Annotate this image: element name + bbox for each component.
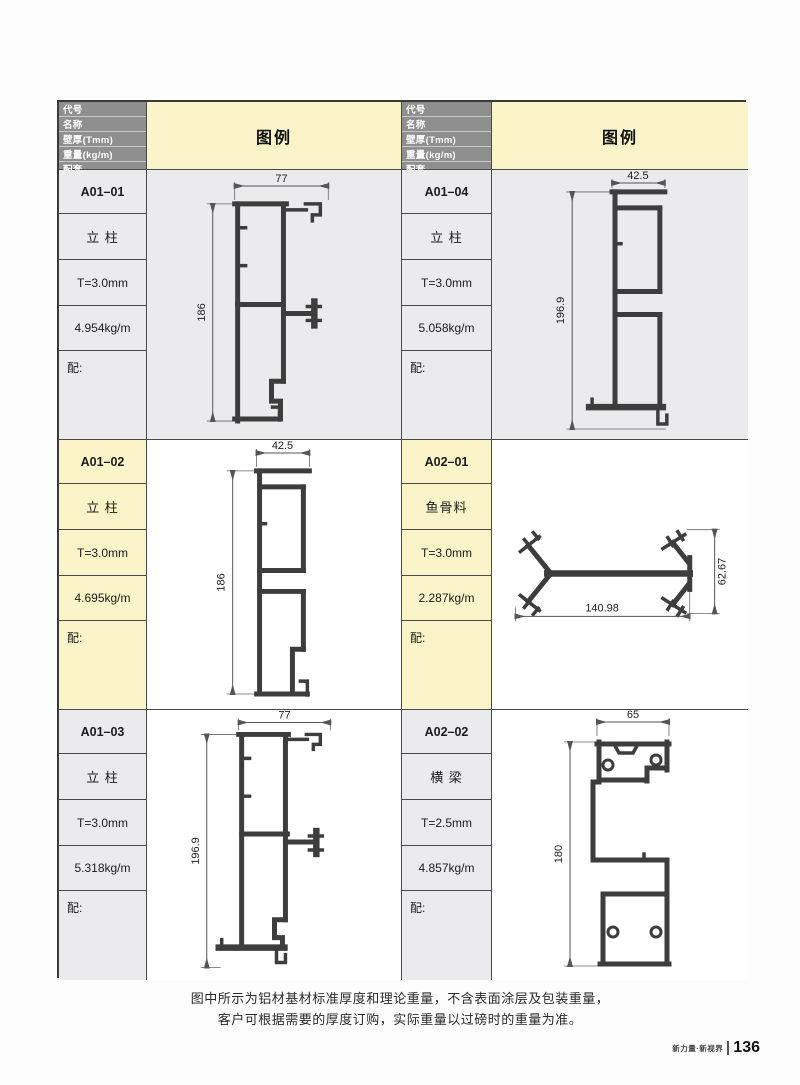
cross-section-drawing-a01-04: 42.5 196.9 — [492, 170, 748, 439]
profile-diagram-a01-04: 42.5 196.9 — [492, 170, 748, 440]
profile-info-a01-04: A01–04 立 柱 T=3.0mm 5.058kg/m 配: — [402, 170, 492, 440]
profile-diagram-a02-01: 140.98 62.67 — [492, 440, 748, 710]
dim-width-label: 77 — [278, 710, 290, 721]
profile-code: A01–02 — [59, 440, 146, 484]
profile-match: 配: — [402, 621, 491, 709]
profile-weight: 2.287kg/m — [402, 576, 491, 621]
profile-match: 配: — [402, 891, 491, 980]
dim-height-label: 186 — [216, 573, 228, 591]
profile-code: A02–01 — [402, 440, 491, 484]
cross-section-drawing-a01-03: 77 196.9 — [147, 710, 401, 980]
profile-name: 立 柱 — [402, 214, 491, 260]
profile-match: 配: — [402, 351, 491, 439]
cross-section-drawing-a01-01: 77 186 — [147, 170, 401, 439]
dim-height-label: 186 — [196, 303, 208, 321]
header-field-name: 名称 — [59, 117, 146, 132]
profile-thickness: T=2.5mm — [402, 800, 491, 846]
header-legend-left: 图例 — [147, 102, 402, 170]
brand-slogan: 新力量·新视界 — [672, 1043, 723, 1054]
profile-diagram-a01-01: 77 186 — [147, 170, 402, 440]
cross-section-drawing-a01-02: 42.5 186 — [147, 440, 401, 709]
profile-info-a01-01: A01–01 立 柱 T=3.0mm 4.954kg/m 配: — [59, 170, 147, 440]
header-field-code: 代号 — [59, 102, 146, 117]
profile-spec-table: 代号 名称 壁厚(Tmm) 重量(kg/m) 配套 图例 代号 名称 壁厚(Tm… — [57, 100, 746, 978]
profile-code: A02–02 — [402, 710, 491, 754]
header-fields-right: 代号 名称 壁厚(Tmm) 重量(kg/m) 配套 — [402, 102, 492, 170]
profile-code: A01–01 — [59, 170, 146, 214]
profile-match: 配: — [59, 351, 146, 439]
profile-info-a01-02: A01–02 立 柱 T=3.0mm 4.695kg/m 配: — [59, 440, 147, 710]
dim-height-label: 180 — [553, 845, 565, 863]
profile-info-a01-03: A01–03 立 柱 T=3.0mm 5.318kg/m 配: — [59, 710, 147, 980]
dim-width-label: 42.5 — [272, 440, 293, 452]
dim-height-label: 196.9 — [190, 837, 202, 864]
cross-section-drawing-a02-01: 140.98 62.67 — [492, 440, 748, 709]
footer-note: 图中所示为铝材基材标准厚度和理论重量，不含表面涂层及包装重量， 客户可根据需要的… — [0, 988, 800, 1030]
header-field-thickness: 壁厚(Tmm) — [402, 132, 491, 147]
header-fields-left: 代号 名称 壁厚(Tmm) 重量(kg/m) 配套 — [59, 102, 147, 170]
profile-code: A01–04 — [402, 170, 491, 214]
profile-info-a02-02: A02–02 横 梁 T=2.5mm 4.857kg/m 配: — [402, 710, 492, 980]
footer-note-line2: 客户可根据需要的厚度订购，实际重量以过磅时的重量为准。 — [0, 1009, 800, 1030]
profile-name: 立 柱 — [59, 484, 146, 530]
header-field-name: 名称 — [402, 117, 491, 132]
profile-match: 配: — [59, 621, 146, 709]
profile-name: 横 梁 — [402, 754, 491, 800]
profile-weight: 5.058kg/m — [402, 306, 491, 351]
header-field-thickness: 壁厚(Tmm) — [59, 132, 146, 147]
dim-width-label: 77 — [275, 173, 287, 185]
page-footer: 新力量·新视界 136 — [672, 1039, 760, 1057]
profile-weight: 5.318kg/m — [59, 846, 146, 891]
header-field-weight: 重量(kg/m) — [402, 147, 491, 162]
cross-section-drawing-a02-02: 65 180 — [492, 710, 748, 980]
profile-thickness: T=3.0mm — [59, 800, 146, 846]
dim-width-label: 65 — [627, 710, 639, 721]
page-number: 136 — [733, 1039, 760, 1057]
header-legend-right: 图例 — [492, 102, 748, 170]
dim-width-label: 140.98 — [585, 602, 618, 614]
profile-match: 配: — [59, 891, 146, 980]
profile-diagram-a02-02: 65 180 — [492, 710, 748, 980]
profile-name: 立 柱 — [59, 754, 146, 800]
profile-thickness: T=3.0mm — [59, 260, 146, 306]
profile-code: A01–03 — [59, 710, 146, 754]
dim-width-label: 42.5 — [627, 170, 648, 182]
profile-name: 鱼骨料 — [402, 484, 491, 530]
dim-height-label: 196.9 — [555, 297, 567, 324]
footer-note-line1: 图中所示为铝材基材标准厚度和理论重量，不含表面涂层及包装重量， — [0, 988, 800, 1009]
profile-diagram-a01-02: 42.5 186 — [147, 440, 402, 710]
header-field-weight: 重量(kg/m) — [59, 147, 146, 162]
profile-thickness: T=3.0mm — [402, 260, 491, 306]
footer-divider — [727, 1041, 729, 1055]
profile-thickness: T=3.0mm — [59, 530, 146, 576]
profile-info-a02-01: A02–01 鱼骨料 T=3.0mm 2.287kg/m 配: — [402, 440, 492, 710]
profile-name: 立 柱 — [59, 214, 146, 260]
header-field-code: 代号 — [402, 102, 491, 117]
profile-weight: 4.954kg/m — [59, 306, 146, 351]
profile-weight: 4.695kg/m — [59, 576, 146, 621]
profile-weight: 4.857kg/m — [402, 846, 491, 891]
profile-thickness: T=3.0mm — [402, 530, 491, 576]
profile-diagram-a01-03: 77 196.9 — [147, 710, 402, 980]
dim-height-label: 62.67 — [717, 558, 729, 585]
